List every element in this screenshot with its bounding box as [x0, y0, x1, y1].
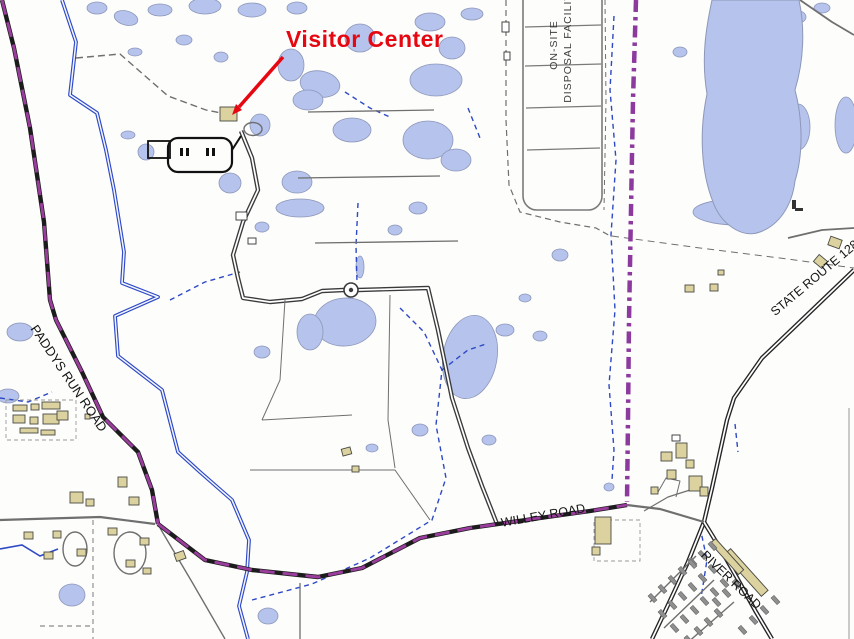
road-gray — [250, 470, 430, 520]
stream — [609, 16, 616, 480]
building-tan — [57, 411, 68, 420]
building-dark — [795, 208, 803, 211]
stream — [170, 272, 240, 300]
pond — [287, 2, 307, 14]
building-tan — [685, 285, 694, 292]
building-tan — [13, 405, 27, 411]
building-tan — [686, 460, 694, 468]
trailer — [760, 605, 769, 614]
facility-cell-divider — [525, 25, 601, 27]
map-canvas: Visitor Center PADDYS RUN ROAD WILLEY RO… — [0, 0, 854, 639]
building-white — [672, 435, 680, 441]
building-tan — [143, 568, 151, 574]
pond — [312, 295, 378, 348]
road-gray — [76, 54, 221, 113]
pond — [238, 3, 266, 17]
building-tan — [108, 528, 117, 535]
building-tan — [24, 532, 33, 539]
building-tan — [651, 487, 658, 494]
willey-road — [158, 505, 627, 577]
road-gray — [262, 300, 285, 420]
trailer — [771, 595, 780, 604]
facility-cell-divider — [525, 64, 601, 66]
building-tan — [13, 415, 25, 423]
pond — [439, 37, 465, 59]
pond — [333, 118, 371, 142]
paddys-run-road — [2, 0, 158, 524]
pond — [176, 35, 192, 45]
visitor-center-arrow — [239, 57, 283, 107]
pond — [87, 2, 107, 14]
road-gray — [0, 517, 155, 524]
trailer — [680, 614, 689, 623]
building-tan — [676, 443, 687, 458]
pond — [128, 48, 142, 56]
trailer — [722, 588, 731, 597]
roundabout-island — [349, 288, 353, 292]
road-gray — [262, 415, 352, 420]
pond — [482, 435, 496, 445]
building-white — [502, 22, 509, 32]
stream — [345, 92, 392, 118]
building-tan — [595, 517, 611, 544]
building-white — [248, 238, 256, 244]
building-tan — [30, 417, 38, 424]
pond — [255, 222, 269, 232]
parking-island — [212, 148, 215, 156]
trailer — [712, 597, 721, 606]
pond — [254, 346, 270, 358]
pond — [148, 4, 172, 16]
pond — [276, 199, 324, 217]
trailer — [648, 593, 657, 602]
building-tan — [77, 549, 86, 556]
pond — [410, 64, 462, 96]
road-gray — [788, 228, 854, 238]
facility-cell-divider — [526, 106, 601, 108]
parking-connector — [232, 136, 241, 150]
pond — [604, 483, 614, 491]
building-tan — [41, 430, 55, 435]
building-tan — [828, 236, 842, 249]
paddys-run-road-casing — [2, 0, 158, 524]
building-tan — [129, 497, 139, 505]
trailer — [690, 605, 699, 614]
building-tan — [667, 470, 676, 479]
pond — [412, 424, 428, 436]
pond — [282, 171, 312, 193]
parking-island — [206, 148, 209, 156]
trailer — [738, 625, 747, 634]
building-tan — [174, 551, 186, 562]
pond — [415, 13, 445, 31]
building-tan — [44, 552, 53, 559]
site-boundary-line — [627, 0, 636, 502]
creek — [62, 0, 249, 639]
road-gray — [388, 295, 395, 468]
road-gray — [627, 505, 704, 522]
building-tan — [118, 477, 127, 487]
pond — [293, 90, 323, 110]
building-tan — [140, 538, 149, 545]
road-gray — [604, 0, 606, 210]
road-gray — [506, 0, 612, 237]
road-gray — [315, 241, 458, 243]
pond — [278, 49, 304, 81]
trailer — [710, 587, 719, 596]
building-tan — [20, 428, 38, 433]
pond — [7, 323, 33, 341]
parking-island — [180, 148, 183, 156]
lake — [702, 0, 803, 234]
pond — [219, 173, 241, 193]
building-tan — [718, 270, 724, 275]
building-tan — [53, 531, 61, 538]
road-casing — [233, 131, 344, 302]
building-tan — [86, 499, 94, 506]
pond — [345, 24, 375, 52]
trailer — [678, 591, 687, 600]
pond — [113, 8, 140, 28]
pond — [409, 202, 427, 214]
pond — [366, 444, 378, 452]
building-tan — [42, 402, 60, 409]
stream — [468, 108, 480, 138]
disposal-facility-outline — [523, 0, 602, 210]
building-tan — [700, 487, 708, 496]
pond — [496, 324, 514, 336]
road-gray — [308, 110, 434, 112]
trailer — [698, 573, 707, 582]
building-white — [236, 212, 247, 220]
building-tan — [70, 492, 83, 503]
pond — [673, 47, 687, 57]
road-gray — [160, 528, 225, 639]
pond — [59, 584, 85, 606]
pond — [835, 97, 854, 153]
pond — [0, 389, 19, 403]
building-tan — [31, 404, 39, 410]
building-tan — [661, 452, 672, 461]
building-tan — [352, 466, 359, 472]
pond — [519, 294, 531, 302]
pond — [388, 225, 402, 235]
building-white — [504, 52, 510, 60]
parking-loop — [168, 138, 232, 172]
facility-cell-divider — [527, 148, 600, 150]
pond — [533, 331, 547, 341]
road-gray — [658, 478, 680, 497]
pond — [121, 131, 135, 139]
trailer — [700, 596, 709, 605]
site-map-svg — [0, 0, 854, 639]
building-tan — [813, 255, 827, 269]
pond — [552, 249, 568, 261]
trailer — [670, 623, 679, 632]
building-tan — [710, 284, 718, 291]
building-tan — [592, 547, 600, 555]
trailer — [688, 582, 697, 591]
trailer — [720, 578, 729, 587]
pond — [214, 52, 228, 62]
creek-core — [62, 0, 249, 639]
pond — [441, 149, 471, 171]
road-gray — [298, 176, 440, 178]
building-tan — [126, 560, 135, 567]
pond — [436, 311, 504, 403]
pond — [258, 608, 278, 624]
stream — [735, 424, 738, 452]
building-tan — [85, 414, 90, 419]
building-tan — [341, 447, 352, 456]
trailer — [708, 564, 717, 573]
pond — [189, 0, 221, 14]
pond — [461, 8, 483, 20]
pond — [297, 314, 323, 350]
parking-island — [186, 148, 189, 156]
building-dark — [792, 200, 796, 209]
